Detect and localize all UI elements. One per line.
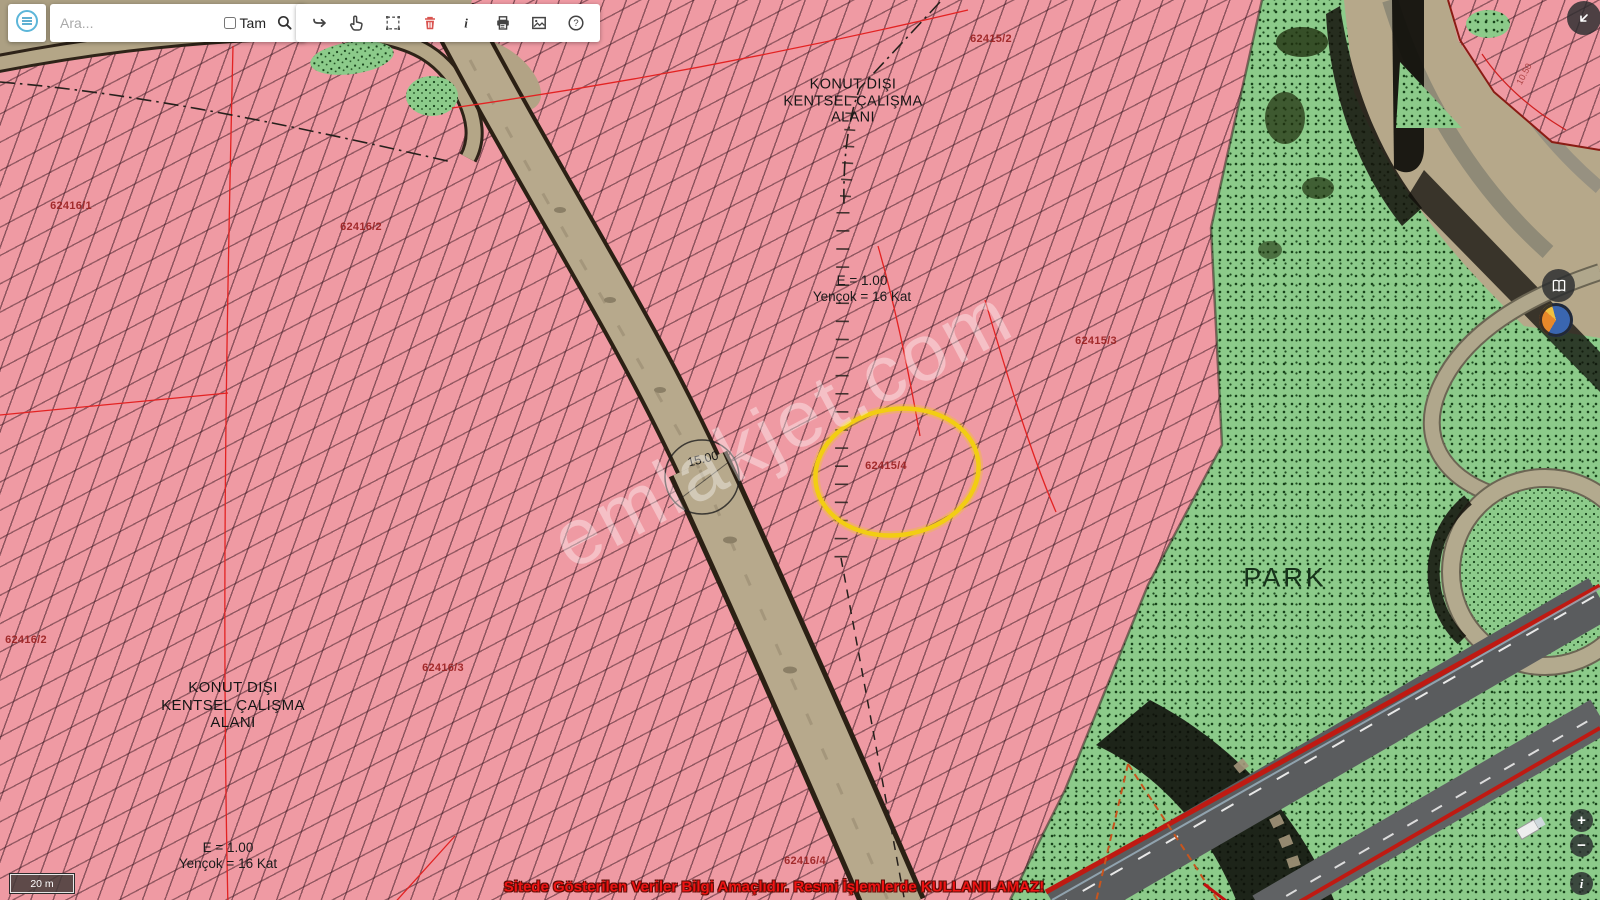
back-arrow-button[interactable] [1567,1,1600,35]
earth-view-button[interactable] [1539,303,1573,337]
exact-match-checkbox[interactable]: Tam [224,15,266,31]
help-icon: ? [567,14,585,32]
area-select-icon [384,14,402,32]
search-bar: Tam [50,4,306,42]
help-button[interactable]: ? [563,10,589,36]
tools-toolbar: i ? [296,4,600,42]
map-graphics [0,0,1600,900]
info-icon: i [457,14,475,32]
map-canvas[interactable]: 62415/2 62415/3 62415/4 62416/1 62416/2 … [0,0,1600,900]
scale-label: 20 m [30,878,53,890]
trash-icon [421,14,439,32]
printer-icon [494,14,512,32]
print-button[interactable] [490,10,516,36]
zoom-out-button[interactable]: − [1570,834,1593,857]
search-button[interactable] [272,10,298,36]
exact-match-label: Tam [240,15,266,31]
hand-pointer-icon [348,14,366,32]
svg-text:i: i [464,16,468,31]
forward-arrow-button[interactable] [307,10,333,36]
magnifier-icon [276,14,294,32]
map-info-button[interactable]: i [1570,872,1593,895]
hamburger-menu-icon [15,9,39,38]
svg-text:?: ? [573,18,578,29]
highlight-ellipse [806,397,988,547]
zoom-in-button[interactable]: + [1570,809,1593,832]
map-layers-button[interactable] [1542,269,1575,302]
scale-bar: 20 m [10,874,74,893]
back-arrow-icon [1576,10,1592,26]
area-select-button[interactable] [380,10,406,36]
menu-button[interactable] [8,4,46,42]
green-patch [1466,10,1510,38]
info-button[interactable]: i [453,10,479,36]
save-image-button[interactable] [526,10,552,36]
hand-select-button[interactable] [344,10,370,36]
map-book-icon [1551,278,1567,294]
forward-arrow-icon [311,14,329,32]
search-input[interactable] [58,14,224,32]
save-image-icon [530,14,548,32]
delete-button[interactable] [417,10,443,36]
